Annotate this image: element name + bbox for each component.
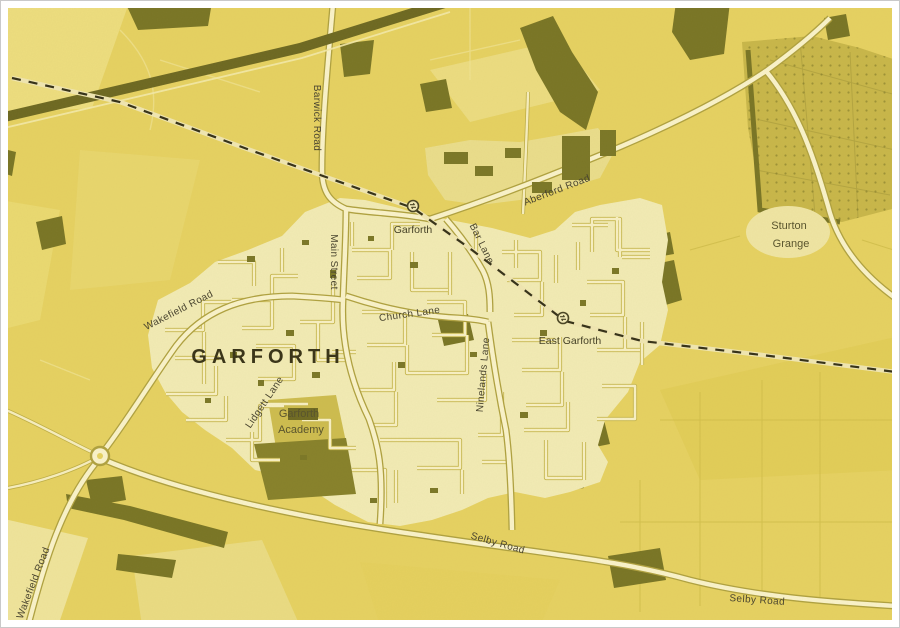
yellow-wash — [7, 7, 893, 621]
garforth-map: GARFORTH Garforth Academy Sturton Grange… — [0, 0, 900, 628]
map-viewport[interactable]: GARFORTH Garforth Academy Sturton Grange… — [0, 0, 900, 628]
